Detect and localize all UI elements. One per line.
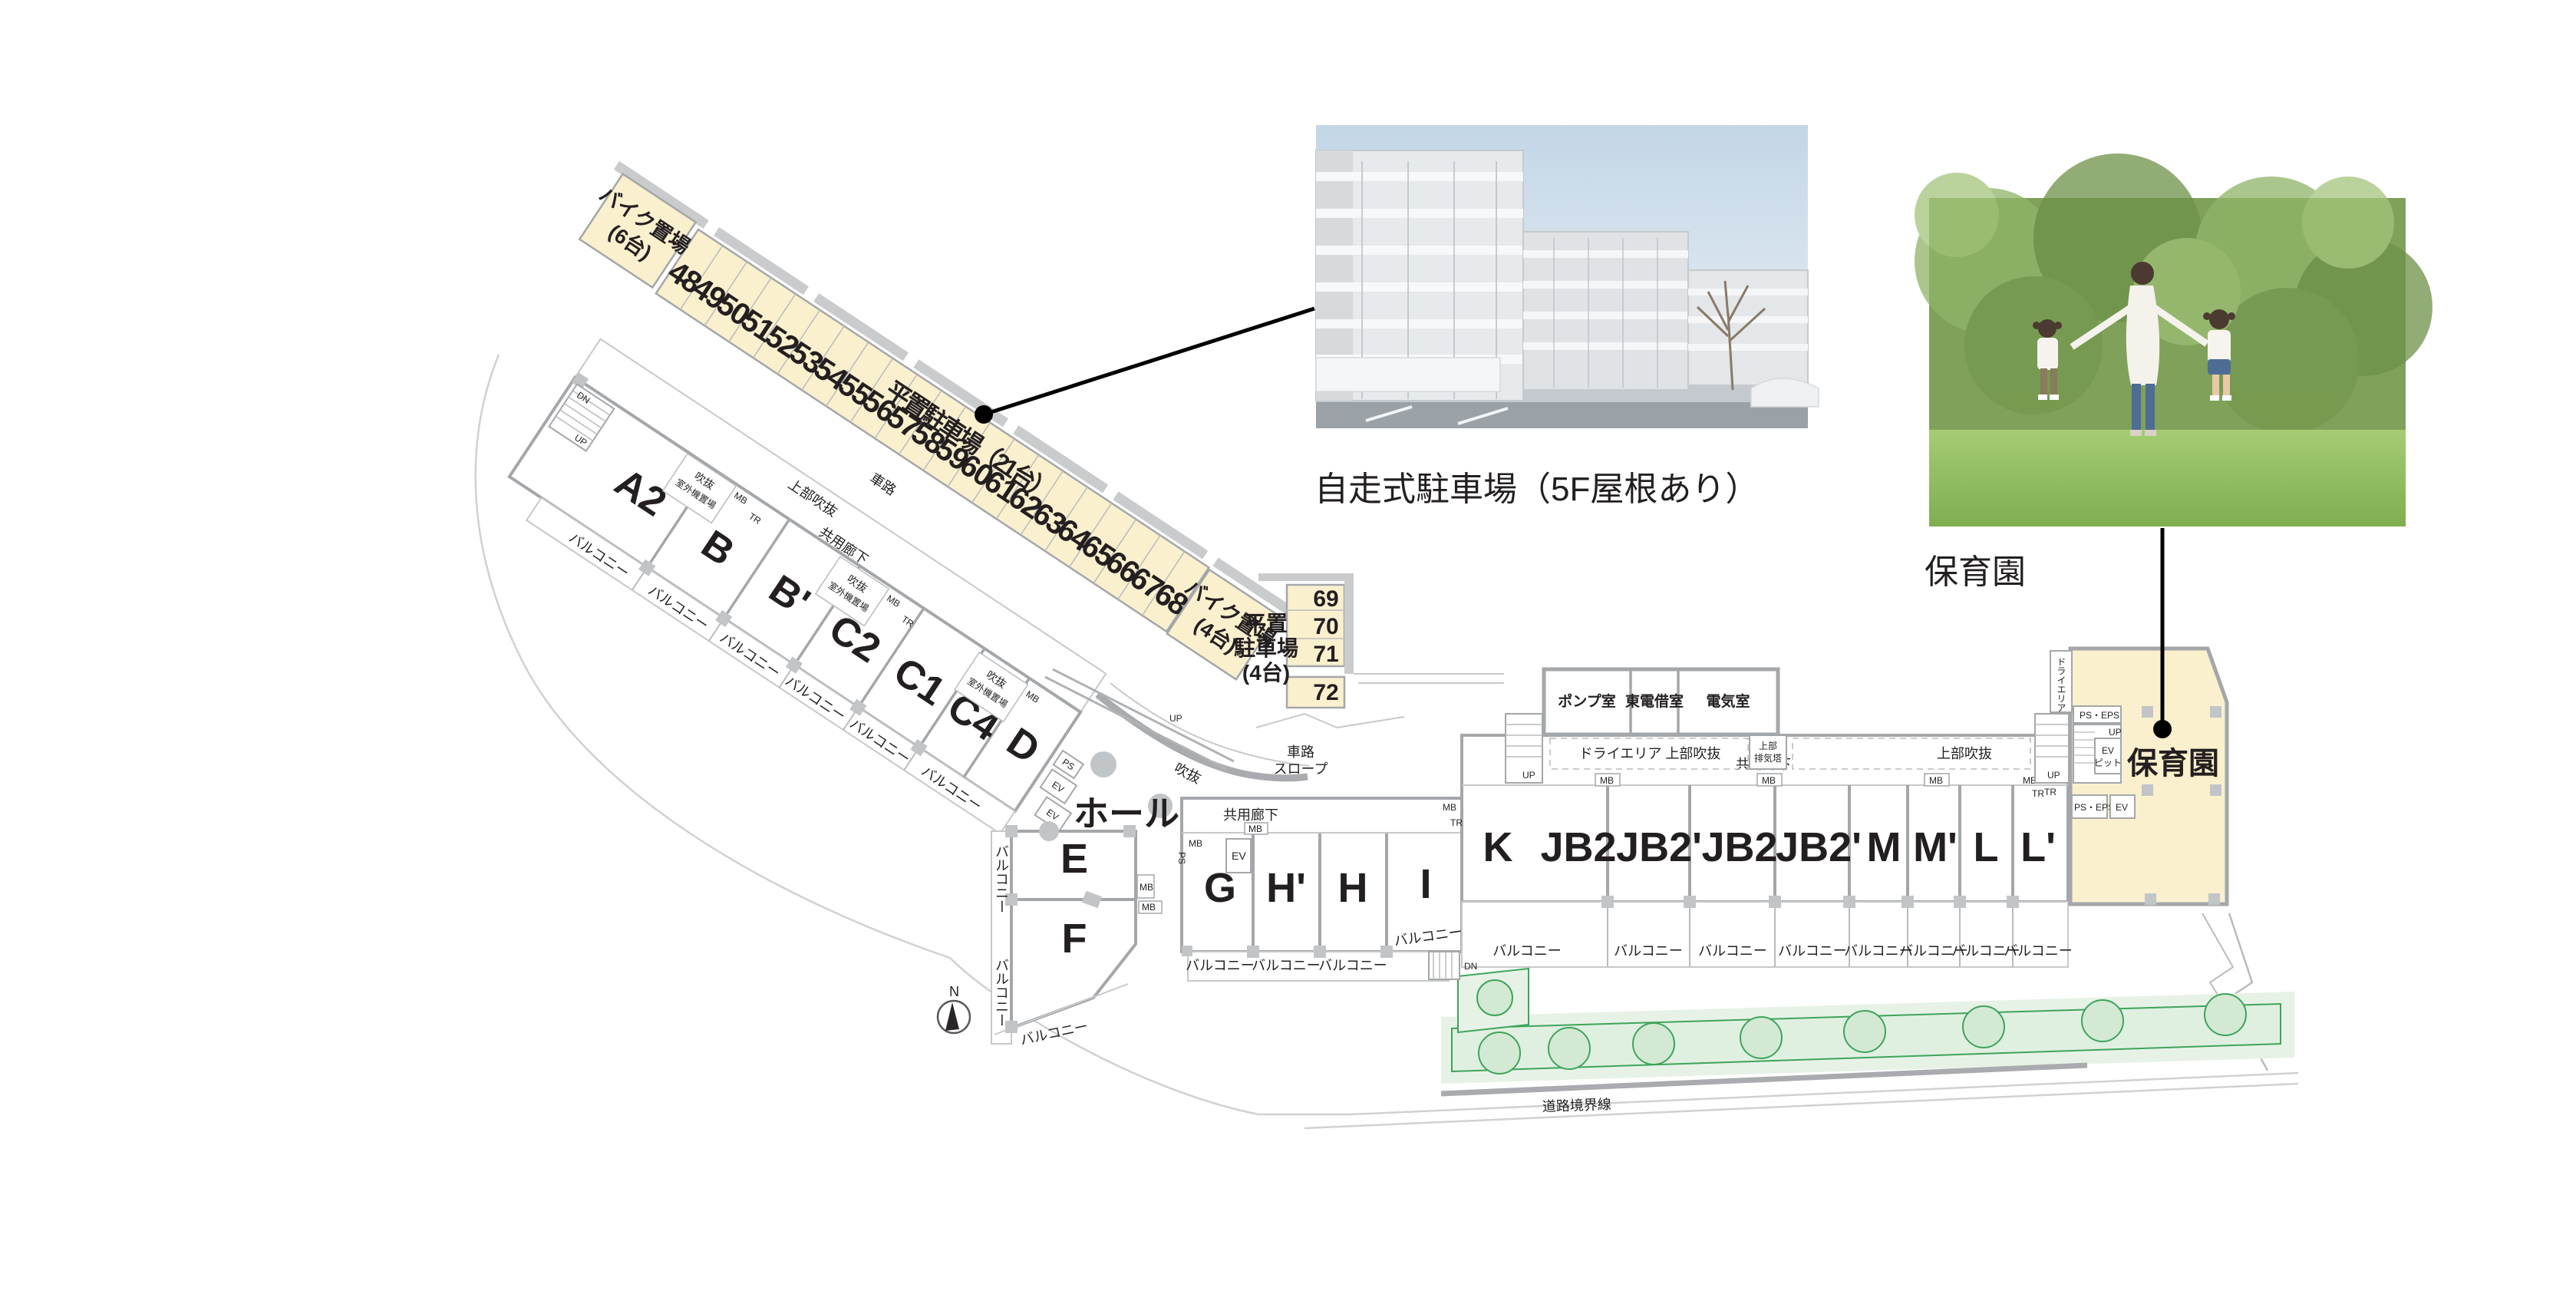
- road-boundary-label: 道路境界線: [1542, 1097, 1611, 1114]
- mb-label: MB: [1443, 802, 1456, 813]
- unit-K: K: [1483, 824, 1513, 870]
- building-photo: [1316, 125, 1819, 428]
- tr-label: TR: [1450, 817, 1463, 828]
- balcony-label: バルコニー: [1614, 943, 1683, 959]
- mb-label: MB: [1600, 775, 1614, 786]
- balcony-label: バルコニー: [994, 844, 1009, 913]
- flat-parking-4: 69 70 71 72 平置 駐車場 (4台): [1234, 574, 1354, 708]
- annotation-line-parking: [984, 309, 1314, 414]
- ps-label: PS: [1176, 852, 1187, 864]
- floor-plan-canvas: DN UP 上部吹抜 共用廊下 A2 B B' C2 C1 C4 D バルコニー…: [0, 0, 2576, 1294]
- left-wing: DN UP 上部吹抜 共用廊下 A2 B B' C2 C1 C4 D バルコニー…: [495, 339, 1107, 834]
- unit-F: F: [1062, 916, 1087, 962]
- stall-70: 70: [1313, 614, 1338, 639]
- exhaust-tower-label-1: 上部: [1759, 740, 1777, 751]
- flat4-label-1: 平置: [1245, 612, 1288, 635]
- ps-eps-label: PS・EPS: [2074, 802, 2114, 813]
- balcony-label: バルコニー: [1318, 958, 1387, 973]
- unit-I: I: [1420, 861, 1431, 907]
- unit-JB2pa: JB2': [1616, 824, 1702, 870]
- ev-label: EV: [2116, 802, 2128, 813]
- ev-pit-label-2: ピット: [2094, 758, 2122, 768]
- balcony-label: バルコニー: [1492, 943, 1562, 959]
- mb-label: MB: [1142, 902, 1156, 913]
- stall-72: 72: [1313, 680, 1338, 705]
- dry-area-void-label: ドライエリア 上部吹抜: [1579, 746, 1721, 761]
- unit-Hp: H': [1266, 865, 1306, 911]
- tepco-room-label: 東電借室: [1625, 692, 1684, 710]
- stair-dn-label: DN: [1464, 961, 1477, 972]
- flat4-label-3: (4台): [1242, 660, 1290, 685]
- stair-up-label: UP: [1522, 770, 1535, 781]
- mb-label: MB: [1762, 775, 1776, 786]
- ps-eps-label: PS・EPS: [2080, 710, 2119, 721]
- balcony-label: バルコニー: [2004, 943, 2073, 959]
- north-label: N: [949, 984, 959, 999]
- ramp-up-label: UP: [1169, 713, 1182, 724]
- electric-room-label: 電気室: [1706, 692, 1750, 710]
- stall-69: 69: [1313, 586, 1338, 612]
- unit-M: M: [1867, 824, 1901, 870]
- ghi-block: G H' H I バルコニー バルコニー バルコニー バルコニー 共用廊下 MB…: [1176, 798, 1463, 981]
- stall-71: 71: [1313, 642, 1338, 667]
- annotation-dot-parking: [975, 405, 993, 424]
- building-photo-caption: 自走式駐車場（5F屋根あり）: [1314, 470, 1759, 508]
- road-label: 車路: [1287, 744, 1314, 760]
- balcony-label: バルコニー: [1778, 943, 1847, 959]
- balcony-label: バルコニー: [1186, 958, 1255, 973]
- nursery-plan-label: 保育園: [2127, 747, 2219, 781]
- mb-label: MB: [1189, 838, 1202, 849]
- annotation-dot-nursery: [2153, 720, 2172, 738]
- unit-L: L: [1974, 824, 1999, 870]
- balcony-label: バルコニー: [994, 958, 1009, 1027]
- mb-label: MB: [1140, 882, 1153, 893]
- void-upper-label: 上部吹抜: [1937, 746, 1992, 761]
- dry-area-label: ドライエリア: [2056, 657, 2066, 712]
- ev-pit-label-1: EV: [2102, 745, 2114, 756]
- balcony-label: バルコニー: [1698, 943, 1767, 959]
- balcony-label: バルコニー: [1252, 958, 1321, 973]
- driveway-label: 車路: [867, 470, 899, 499]
- flat-parking-wall: [1344, 574, 1354, 674]
- family-photo: [1915, 153, 2433, 527]
- unit-JB2a: JB2: [1540, 824, 1616, 870]
- mb-label: MB: [1248, 824, 1262, 834]
- stair-up-label: UP: [2047, 770, 2060, 781]
- unit-E: E: [1060, 836, 1088, 882]
- slope-label: スロープ: [1274, 761, 1328, 777]
- north-arrow: N: [938, 984, 970, 1033]
- ramp-void-label: 吹抜: [1172, 761, 1203, 787]
- exhaust-tower-label-2: 排気塔: [1754, 752, 1782, 764]
- unit-JB2b: JB2: [1701, 824, 1777, 870]
- mb-label: MB: [1929, 775, 1943, 786]
- unit-Mp: M': [1913, 824, 1958, 870]
- tr-label: TR: [2032, 788, 2044, 799]
- ev-label: EV: [1232, 850, 1246, 862]
- corridor-label: 共用廊下: [1223, 807, 1278, 823]
- flat4-label-2: 駐車場: [1234, 636, 1298, 660]
- tr-label: TR: [2044, 787, 2057, 797]
- unit-JB2pb: JB2': [1776, 824, 1862, 870]
- pump-room-label: ポンプ室: [1558, 692, 1615, 710]
- unit-H: H: [1338, 865, 1368, 911]
- ef-block: E F バルコニー バルコニー バルコニー MB MB: [991, 821, 1162, 1048]
- stair-up-label: UP: [2109, 727, 2122, 738]
- unit-Lp: L': [2020, 824, 2056, 870]
- family-photo-caption: 保育園: [1925, 553, 2026, 591]
- site-plan-page: DN UP 上部吹抜 共用廊下 A2 B B' C2 C1 C4 D バルコニー…: [0, 0, 2576, 1294]
